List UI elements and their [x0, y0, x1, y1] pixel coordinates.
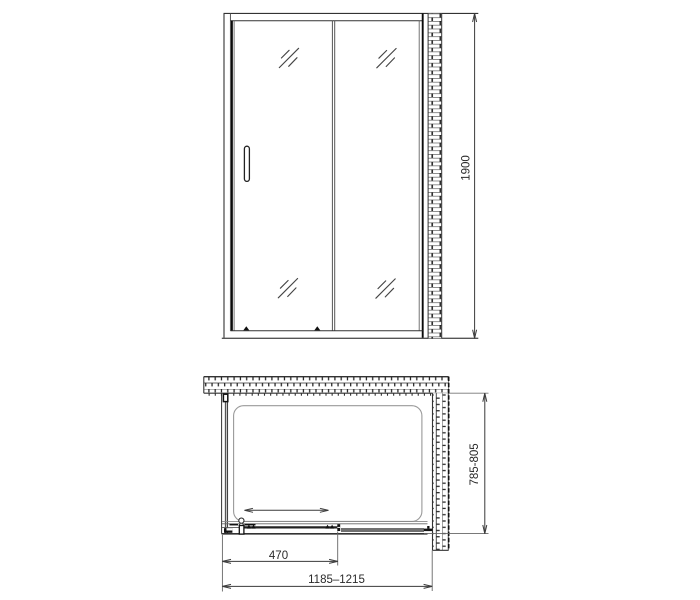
svg-text:470: 470	[269, 550, 288, 562]
svg-text:785-805: 785-805	[469, 443, 481, 485]
svg-text:1900: 1900	[460, 155, 472, 181]
svg-text:1185–1215: 1185–1215	[308, 574, 365, 586]
